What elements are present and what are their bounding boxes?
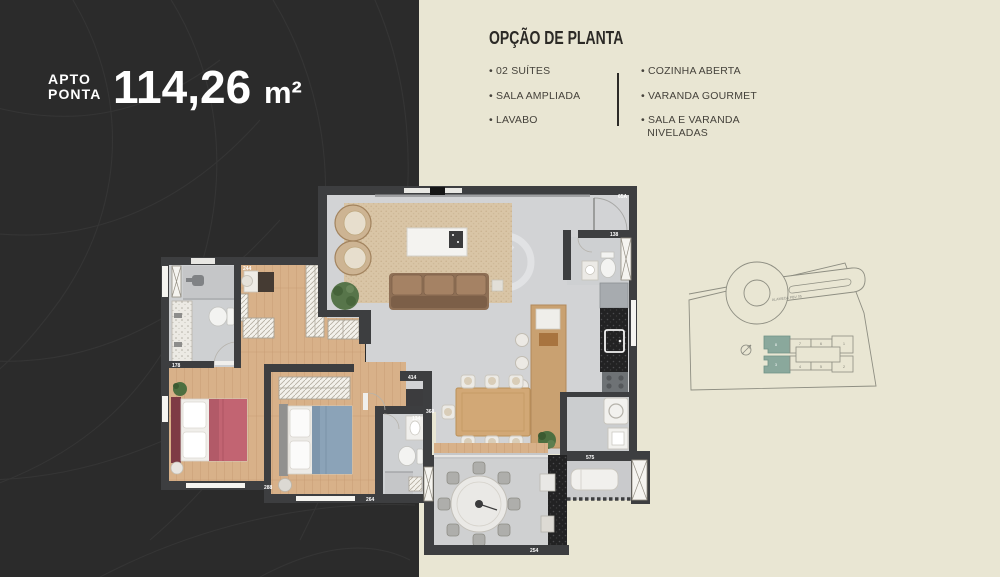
svg-text:178: 178 — [172, 363, 181, 369]
svg-text:7: 7 — [799, 342, 801, 346]
svg-text:264: 264 — [366, 497, 375, 503]
svg-text:134: 134 — [412, 416, 421, 422]
svg-text:244: 244 — [243, 266, 252, 272]
svg-text:138: 138 — [610, 232, 619, 238]
svg-text:4: 4 — [799, 365, 801, 369]
svg-text:368: 368 — [426, 409, 435, 415]
svg-text:8: 8 — [775, 343, 777, 347]
svg-text:575: 575 — [586, 455, 595, 461]
svg-text:6: 6 — [820, 342, 822, 346]
svg-text:3: 3 — [775, 363, 777, 367]
svg-text:65A: 65A — [618, 194, 628, 200]
svg-text:5: 5 — [820, 365, 822, 369]
svg-text:414: 414 — [408, 375, 417, 381]
svg-text:288: 288 — [264, 485, 273, 491]
svg-text:254: 254 — [530, 548, 539, 554]
svg-text:1: 1 — [843, 342, 845, 346]
svg-text:2: 2 — [843, 365, 845, 369]
